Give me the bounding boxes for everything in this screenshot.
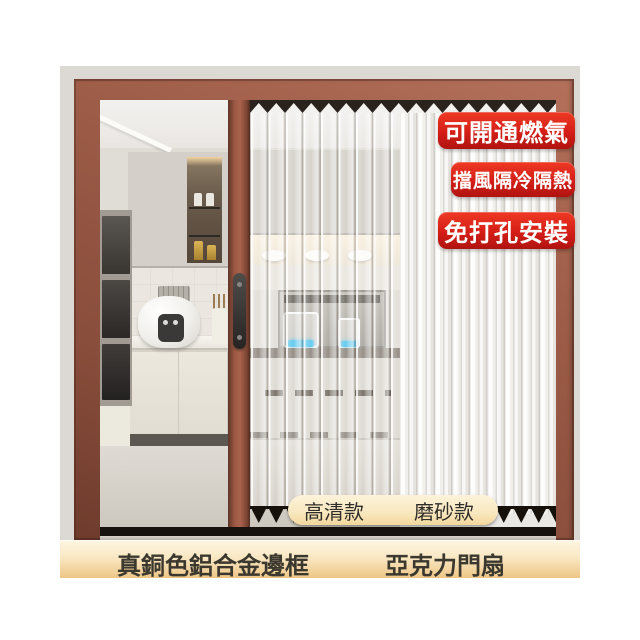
handle-detail [237,335,242,340]
rice-cooker-panel [158,314,184,342]
gold-bottle [207,245,216,260]
built-in-oven [102,280,130,338]
niche-shelf [189,207,220,209]
variant-label-clear: 高清款 [304,496,364,525]
badge-insulation: 擋風隔冷隔熱 [451,162,575,197]
caption-frame-material: 真銅色鋁合金邊框 [117,546,309,581]
badge-gas-allowed: 可開通燃氣 [438,112,575,149]
variant-pill: 高清款 磨砂款 [288,495,498,525]
oven-tower [100,210,132,406]
door-leading-stile [228,100,250,527]
white-canister [206,193,214,206]
cooker-button [163,320,168,325]
niche-light [187,157,222,166]
door-threshold [100,527,556,536]
caption-panel-material: 亞克力門扇 [385,546,505,581]
product-photo: 可開通燃氣 擋風隔冷隔熱 免打孔安裝 高清款 磨砂款 真銅色鋁合金邊框 亞克力門… [60,66,580,578]
white-canister [194,193,202,206]
product-image: 可開通燃氣 擋風隔冷隔熱 免打孔安裝 高清款 磨砂款 真銅色鋁合金邊框 亞克力門… [0,0,640,640]
variant-label-frosted: 磨砂款 [414,496,474,525]
display-niche [187,157,222,263]
rice-cooker [138,296,200,348]
gold-bottle [194,241,203,260]
cooker-button [173,320,178,325]
badge-no-drill-install: 免打孔安裝 [438,212,575,249]
caption-bar: 真銅色鋁合金邊框 亞克力門扇 [60,540,580,578]
cabinet-seam [178,350,179,434]
accordion-clear-panel [250,111,400,510]
built-in-oven [102,216,130,274]
handle-detail [237,282,242,287]
built-in-oven [102,344,130,400]
door-handle [233,273,246,349]
niche-shelf [189,235,220,237]
tower-base-panel [100,406,130,448]
cabinet-kickplate [128,434,228,446]
